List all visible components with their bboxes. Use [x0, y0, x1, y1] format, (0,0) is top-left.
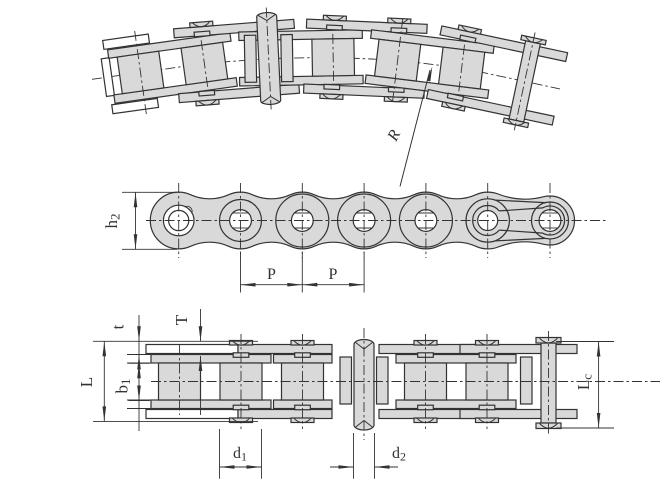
- svg-text:h2: h2: [102, 214, 123, 229]
- svg-text:t: t: [109, 324, 128, 329]
- svg-text:T: T: [172, 314, 191, 325]
- svg-text:R: R: [384, 127, 404, 145]
- svg-text:Lc: Lc: [574, 374, 595, 390]
- svg-text:b1: b1: [113, 379, 134, 394]
- svg-text:P: P: [329, 266, 338, 283]
- svg-text:d1: d1: [233, 445, 247, 464]
- svg-text:P: P: [267, 266, 276, 283]
- svg-text:L: L: [77, 377, 96, 387]
- svg-text:d2: d2: [392, 445, 406, 464]
